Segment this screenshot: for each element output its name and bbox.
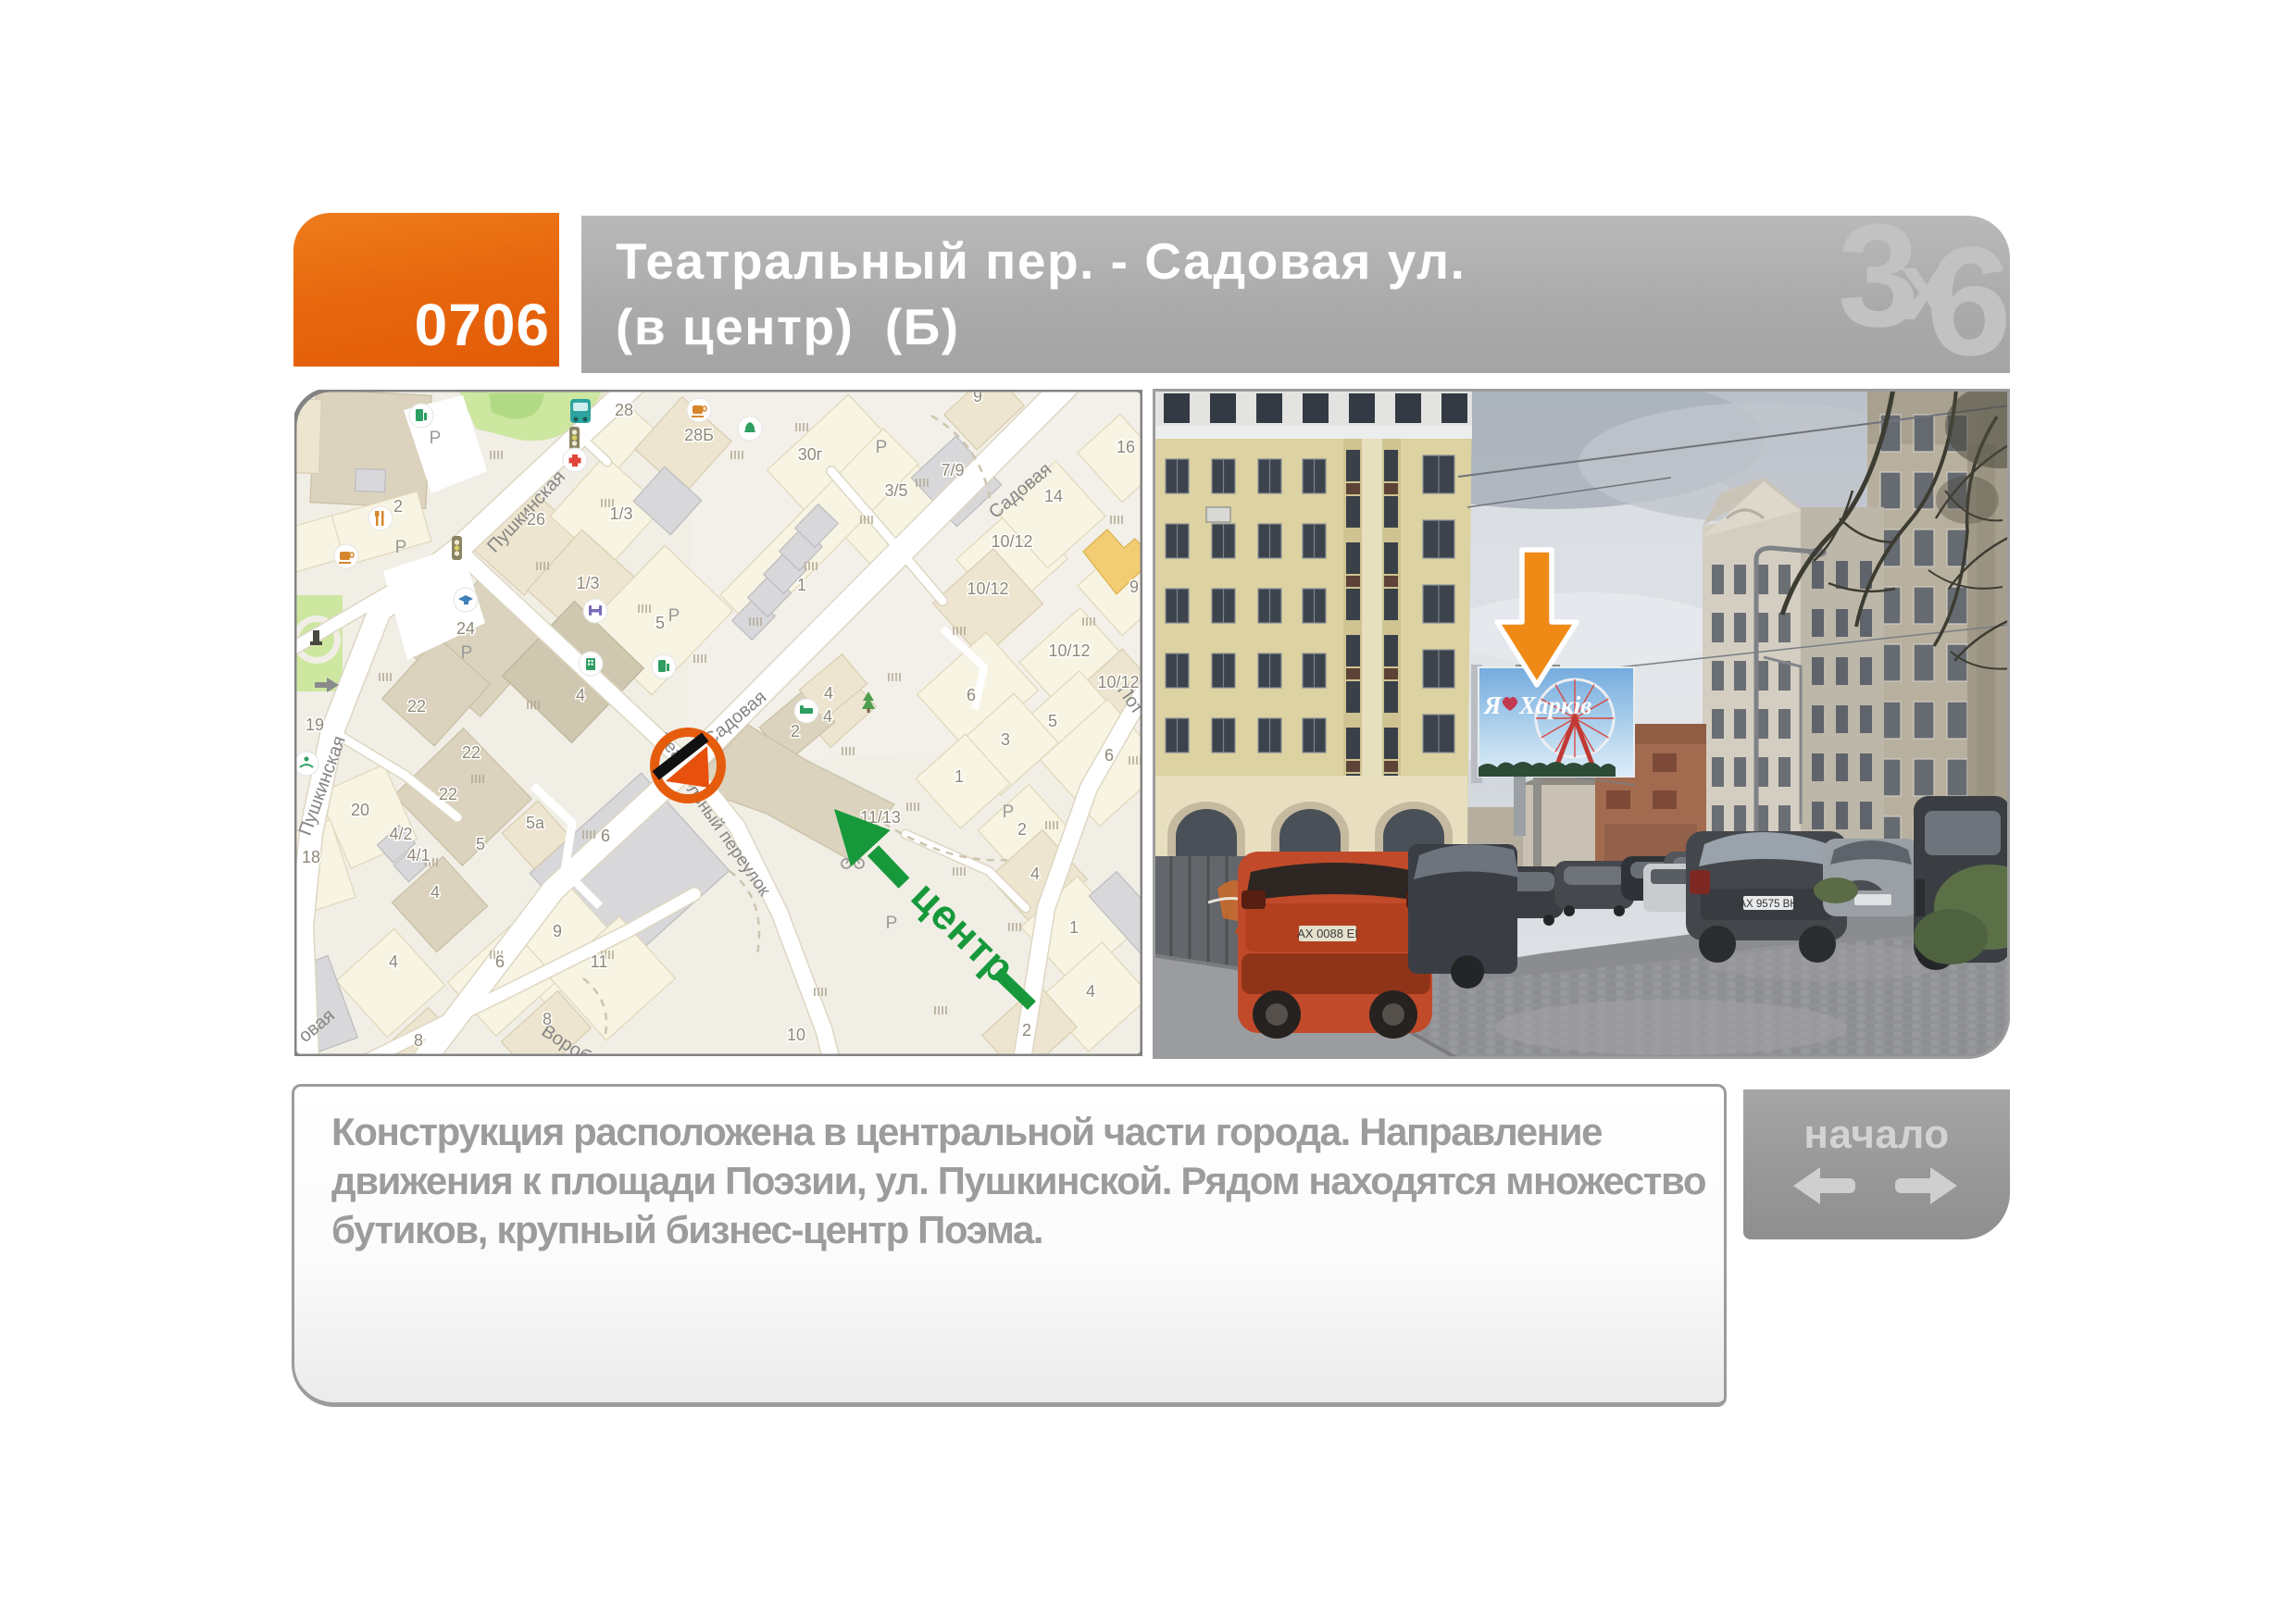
svg-text:22: 22 (407, 697, 426, 716)
svg-text:9: 9 (553, 922, 562, 940)
svg-text:9: 9 (1129, 578, 1139, 596)
svg-text:10/12: 10/12 (991, 532, 1032, 551)
svg-text:P: P (461, 643, 473, 663)
svg-text:P: P (668, 606, 680, 626)
svg-text:2: 2 (1017, 820, 1027, 839)
svg-text:Я: Я (1483, 691, 1503, 719)
svg-text:5: 5 (1048, 712, 1057, 730)
svg-text:1: 1 (955, 767, 964, 786)
svg-text:2: 2 (1022, 1021, 1031, 1039)
svg-text:3/5: 3/5 (884, 481, 907, 500)
svg-text:22: 22 (439, 785, 457, 803)
svg-text:AX 0088 EI: AX 0088 EI (1297, 927, 1358, 940)
svg-text:14: 14 (1044, 487, 1063, 505)
svg-text:Харків: Харків (1518, 691, 1591, 719)
svg-text:4: 4 (430, 883, 440, 902)
svg-text:5: 5 (655, 614, 665, 632)
svg-text:11: 11 (591, 952, 608, 971)
svg-text:5: 5 (476, 835, 485, 853)
svg-text:10/12: 10/12 (1097, 673, 1139, 691)
svg-text:6: 6 (601, 827, 610, 845)
svg-text:20: 20 (351, 801, 369, 819)
svg-text:8: 8 (543, 1010, 552, 1028)
svg-text:2: 2 (393, 497, 403, 516)
svg-text:P: P (395, 538, 407, 557)
svg-text:1: 1 (797, 576, 806, 594)
svg-text:2: 2 (791, 722, 800, 741)
svg-text:7/9: 7/9 (941, 461, 964, 479)
svg-text:4: 4 (389, 952, 398, 971)
svg-text:8: 8 (414, 1031, 423, 1050)
svg-text:P: P (430, 429, 442, 448)
svg-text:10: 10 (787, 1026, 805, 1044)
svg-text:AX 9575 BH: AX 9575 BH (1739, 899, 1797, 910)
svg-text:4/1: 4/1 (406, 846, 430, 865)
svg-text:1/3: 1/3 (576, 574, 599, 592)
svg-text:18: 18 (302, 848, 320, 866)
svg-text:26: 26 (527, 510, 545, 529)
svg-text:3: 3 (1001, 730, 1010, 749)
svg-text:28Б: 28Б (684, 426, 714, 444)
svg-text:4: 4 (823, 707, 832, 726)
svg-text:9: 9 (973, 390, 982, 405)
svg-text:5а: 5а (526, 814, 545, 832)
svg-text:4: 4 (1030, 865, 1040, 883)
svg-text:24: 24 (456, 619, 475, 638)
svg-text:P: P (1003, 803, 1015, 822)
svg-text:1: 1 (1069, 918, 1079, 937)
svg-text:10/12: 10/12 (967, 579, 1008, 598)
svg-text:6: 6 (495, 952, 505, 971)
svg-text:10/12: 10/12 (1048, 641, 1090, 660)
svg-text:4/2: 4/2 (389, 825, 412, 843)
svg-text:4: 4 (1086, 982, 1095, 1001)
svg-text:4: 4 (824, 684, 833, 703)
svg-text:6: 6 (967, 686, 976, 704)
svg-text:19: 19 (306, 716, 324, 734)
svg-text:4: 4 (576, 686, 585, 704)
svg-text:P: P (886, 914, 898, 933)
svg-text:28: 28 (615, 401, 633, 419)
svg-text:22: 22 (462, 743, 480, 762)
svg-text:6: 6 (1104, 746, 1114, 765)
svg-text:16: 16 (1117, 438, 1135, 456)
svg-text:30г: 30г (798, 445, 823, 464)
svg-text:1/3: 1/3 (609, 504, 632, 523)
svg-text:P: P (876, 438, 888, 457)
